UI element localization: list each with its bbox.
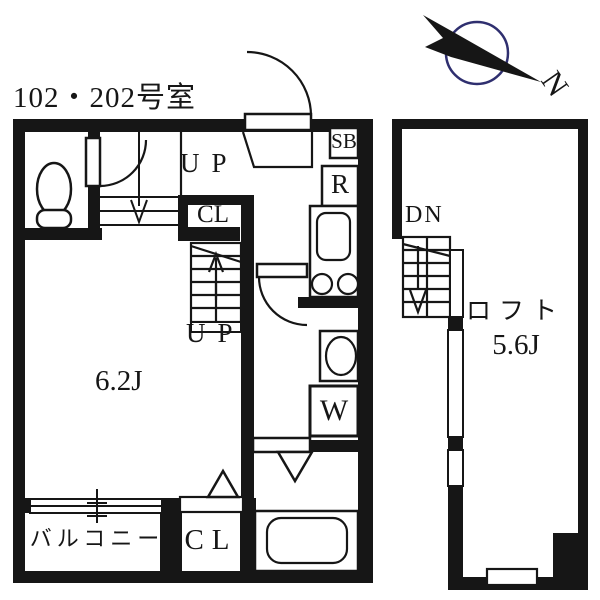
wall-loft-left — [392, 119, 402, 239]
loft-side-window-1 — [448, 330, 463, 437]
loft-size-label: 5.6J — [480, 331, 552, 360]
shoe-box-label: SB — [329, 131, 359, 152]
wall-main-left — [13, 119, 25, 583]
stairs-up-label-loft: UP — [186, 320, 245, 347]
compass-needle-icon — [423, 15, 541, 82]
wall-washroom-bottom — [308, 440, 358, 452]
wall-main-top — [13, 119, 373, 132]
toilet-door — [86, 138, 146, 186]
entrance-door-leaf — [245, 114, 311, 130]
closet-upper-label: CL — [188, 202, 238, 227]
bathroom-door — [253, 438, 312, 481]
wall-closet-bottom — [178, 227, 240, 241]
wall-kitchen-bottom — [298, 297, 358, 308]
unit-number-label: 102・202号室 — [13, 84, 196, 113]
stairs-down-label: DN — [405, 203, 444, 227]
balcony-window — [30, 489, 162, 523]
bathroom-door-panel — [253, 438, 310, 452]
staircase-loft-down — [403, 237, 463, 317]
compass — [423, 15, 541, 84]
wall-loft-window-gap — [448, 437, 463, 450]
bathroom-door-swing-triangle — [278, 452, 312, 481]
stair-railing — [450, 250, 463, 317]
loft-name-label: ロフト — [466, 299, 564, 324]
washbasin-icon — [320, 331, 358, 381]
wall-loft-top — [392, 119, 588, 129]
staircase-entrance — [100, 132, 178, 225]
washroom-door — [257, 264, 307, 325]
loft-side-window-2 — [448, 450, 463, 486]
wall-toilet-bottom — [13, 228, 102, 240]
entrance-door-arc — [247, 52, 311, 116]
toilet-door-leaf — [86, 138, 100, 186]
burner-right — [338, 274, 358, 294]
floorplan: 102・202号室 UP CL UP SB R W 6.2J バルコニー CL … — [0, 0, 600, 600]
balcony-label: バルコニー — [24, 528, 170, 550]
washing-machine-label: W — [310, 396, 358, 426]
wall-loft-stair-stub — [448, 317, 463, 330]
refrigerator-label: R — [322, 171, 358, 198]
stairs-up-label-entrance: UP — [180, 150, 239, 177]
wall-balcony-left-stub — [13, 498, 30, 513]
wall-main-right — [358, 119, 373, 583]
main-room-size-label: 6.2J — [95, 367, 143, 396]
washroom-door-leaf — [257, 264, 307, 277]
wall-main-bottom — [13, 571, 373, 583]
entrance-door — [245, 52, 311, 130]
toilet-icon — [37, 163, 71, 228]
wall-loft-right — [578, 119, 588, 590]
loft-bottom-window — [487, 569, 537, 585]
closet2-door-swing-triangle — [208, 471, 238, 497]
burner-left — [312, 274, 332, 294]
kitchen-unit — [310, 206, 358, 297]
entrance-step-outline — [243, 132, 312, 167]
closet2-door — [180, 471, 243, 512]
wall-loft-lower-left — [448, 486, 463, 581]
kitchen-sink — [317, 213, 350, 260]
closet-lower-label: CL — [180, 526, 242, 555]
bathtub-icon — [255, 511, 358, 571]
wall-loft-corner-block — [553, 533, 588, 583]
closet2-door-panel — [180, 497, 243, 512]
